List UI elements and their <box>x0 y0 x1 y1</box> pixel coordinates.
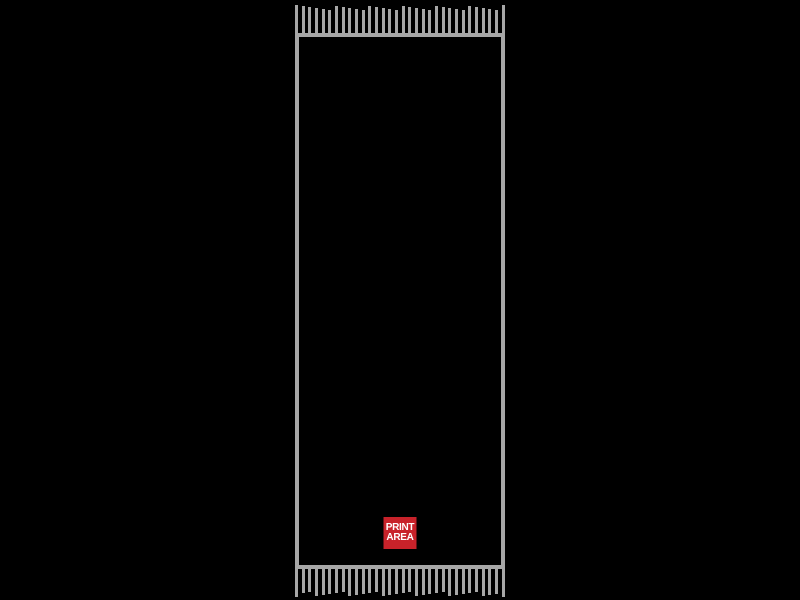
fringe-tassel <box>468 569 471 593</box>
fringe-tassel <box>302 569 305 593</box>
fringe-tassel <box>435 569 438 593</box>
fringe-tassel <box>475 569 478 592</box>
fringe-tassel <box>408 569 411 592</box>
fringe-tassel <box>348 8 351 33</box>
fringe-tassel <box>402 6 405 33</box>
fringe-tassel <box>342 569 345 592</box>
fringe-tassel <box>375 7 378 33</box>
print-area-badge[interactable]: PRINT AREA <box>384 517 417 549</box>
fringe-tassel <box>442 7 445 33</box>
fringe-tassel <box>368 569 371 593</box>
fringe-tassel <box>455 569 458 595</box>
fringe-tassel <box>308 7 311 33</box>
fringe-tassel <box>375 569 378 592</box>
fringe-tassel <box>495 10 498 33</box>
fringe-tassel <box>402 569 405 593</box>
fringe-tassel <box>368 6 371 33</box>
fringe-tassel <box>302 6 305 33</box>
fringe-tassel <box>382 8 385 33</box>
fringe-tassel <box>455 9 458 33</box>
print-area-label-line2: AREA <box>386 533 413 544</box>
fringe-tassel <box>295 5 298 33</box>
fringe-tassel <box>422 9 425 33</box>
scarf-body: PRINT AREA <box>295 33 505 569</box>
fringe-tassel <box>362 569 365 594</box>
fringe-tassel <box>488 569 491 595</box>
fringe-tassel <box>328 10 331 33</box>
fringe-tassel <box>342 7 345 33</box>
fringe-tassel <box>355 9 358 33</box>
mockup-canvas: { "page": { "background_color": "#000000… <box>0 0 800 600</box>
fringe-tassel <box>328 569 331 594</box>
fringe-tassel <box>322 569 325 595</box>
fringe-tassel <box>388 569 391 595</box>
fringe-tassel <box>482 569 485 596</box>
fringe-tassel <box>382 569 385 596</box>
fringe-tassel <box>448 569 451 596</box>
fringe-tassel <box>502 5 505 33</box>
fringe-tassel <box>395 10 398 33</box>
fringe-tassel <box>495 569 498 594</box>
fringe-tassel <box>308 569 311 592</box>
fringe-tassel <box>315 569 318 596</box>
fringe-tassel <box>462 10 465 33</box>
fringe-tassel <box>442 569 445 592</box>
fringe-tassel <box>355 569 358 595</box>
fringe-tassel <box>435 6 438 33</box>
fringe-tassel <box>415 569 418 596</box>
fringe-tassel <box>315 8 318 33</box>
fringe-tassel <box>448 8 451 33</box>
fringe-tassel <box>415 8 418 33</box>
fringe-tassel <box>362 10 365 33</box>
fringe-tassel <box>388 9 391 33</box>
fringe-tassel <box>395 569 398 594</box>
fringe-tassel <box>488 9 491 33</box>
fringe-tassel <box>462 569 465 594</box>
scarf-top-fringe <box>295 5 505 33</box>
fringe-tassel <box>408 7 411 33</box>
scarf-mockup: PRINT AREA <box>295 5 505 596</box>
fringe-tassel <box>475 7 478 33</box>
fringe-tassel <box>482 8 485 33</box>
fringe-tassel <box>428 10 431 33</box>
fringe-tassel <box>348 569 351 596</box>
fringe-tassel <box>428 569 431 594</box>
fringe-tassel <box>335 569 338 593</box>
fringe-tassel <box>422 569 425 595</box>
fringe-tassel <box>295 569 298 597</box>
scarf-bottom-fringe <box>295 569 505 596</box>
fringe-tassel <box>322 9 325 33</box>
fringe-tassel <box>335 6 338 33</box>
fringe-tassel <box>502 569 505 597</box>
fringe-tassel <box>468 6 471 33</box>
